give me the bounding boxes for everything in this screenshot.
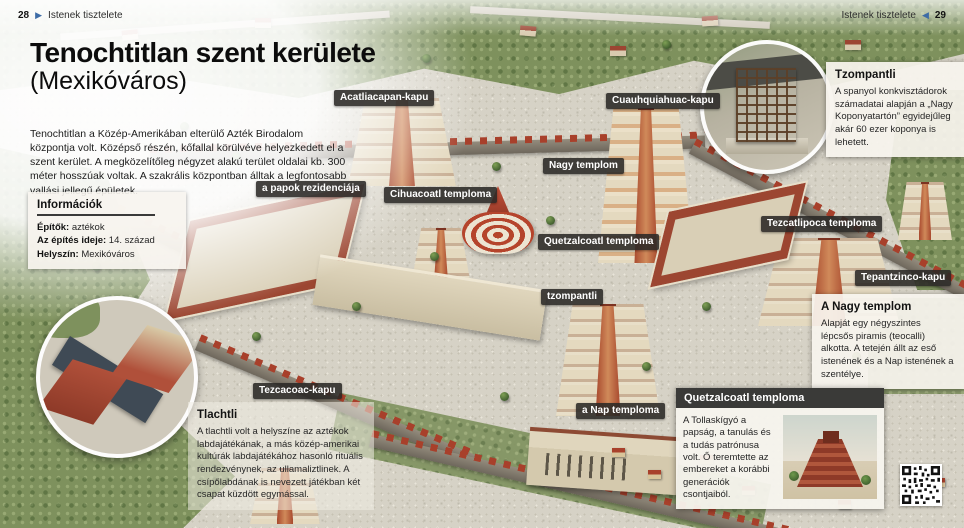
info-row-location: Helyszín: Mexikóváros [37, 248, 177, 261]
ballcourt-inset-photo [36, 296, 198, 458]
inset-grass [36, 296, 100, 338]
sun-temple-pyramid [556, 304, 660, 416]
tree [252, 332, 261, 341]
tree [546, 216, 555, 225]
info-row-date: Az építés ideje: 14. század [37, 234, 177, 247]
info-box: Információk Építők: aztékok Az építés id… [28, 192, 186, 269]
palm-tree [789, 471, 799, 481]
map-label-nap-temploma: a Nap temploma [576, 403, 665, 419]
callout-tzompantli-body: A spanyol konkvisztádorok számadatai ala… [835, 86, 957, 149]
mini-shrine [823, 431, 839, 443]
tree [642, 362, 651, 371]
section-title-right: Istenek tisztelete [841, 10, 915, 21]
map-label-tezcatlipoca-temploma: Tezcatlipoca temploma [761, 216, 882, 232]
palm-tree [861, 475, 871, 485]
callout-nagy-templom-body: Alapját egy négyszintes lépcsős piramis … [821, 318, 955, 381]
colonnade-building [526, 427, 680, 495]
cone-base [462, 212, 534, 254]
callout-nagy-templom-title: A Nagy templom [821, 301, 955, 313]
title-block: Tenochtitlan szent kerülete (Mexikóváros… [30, 38, 375, 96]
map-label-tepantzinco-kapu: Tepantzinco-kapu [855, 270, 951, 286]
header-fade [0, 0, 964, 36]
page-number-left: 28 [18, 10, 29, 21]
running-head-right: Istenek tisztelete ◀ 29 [841, 10, 946, 21]
section-title-left: Istenek tisztelete [48, 10, 122, 21]
page-subtitle: (Mexikóváros) [30, 67, 375, 96]
callout-tlachtli-title: Tlachtli [197, 409, 365, 421]
info-label: Helyszín: [37, 249, 79, 260]
info-label: Az építés ideje: [37, 235, 106, 246]
running-head-left: 28 ▶ Istenek tisztelete [18, 10, 123, 21]
quetzalcoatl-temple-photo [783, 415, 877, 499]
info-value: Mexikóváros [79, 249, 135, 260]
tree [492, 162, 501, 171]
map-label-tezcacoac-kapu: Tezcacoac-kapu [253, 383, 342, 399]
map-label-papok-rezidenciaja: a papok rezidenciája [256, 181, 366, 197]
map-label-cihuacoatl-temploma: Cihuacoatl temploma [384, 187, 497, 203]
qr-code [900, 464, 942, 506]
map-label-nagy-templom: Nagy templom [543, 158, 624, 174]
arrow-left-icon: ◀ [922, 10, 929, 21]
info-box-rule [37, 214, 155, 216]
arrow-right-icon: ▶ [35, 10, 42, 21]
info-value: 14. század [106, 235, 155, 246]
east-small-pyramid [898, 182, 952, 240]
tree [702, 302, 711, 311]
info-label: Építők: [37, 222, 69, 233]
info-row-builders: Építők: aztékok [37, 221, 177, 234]
book-spread: 28 ▶ Istenek tisztelete Istenek tisztele… [0, 0, 964, 528]
page-title: Tenochtitlan szent kerülete [30, 38, 375, 67]
callout-tzompantli-title: Tzompantli [835, 69, 957, 81]
page-number-right: 29 [935, 10, 946, 21]
callout-quetzalcoatl-title: Quetzalcoatl temploma [676, 388, 884, 408]
map-label-quetzalcoatl-temploma: Quetzalcoatl temploma [538, 234, 659, 250]
mini-pyramid [797, 439, 863, 487]
tree [662, 40, 671, 49]
tzompantli-inset-photo [700, 40, 834, 174]
map-label-tzompantli: tzompantli [541, 289, 603, 305]
callout-tlachtli: Tlachtli A tlachtli volt a helyszíne az … [188, 402, 374, 510]
info-value: aztékok [69, 222, 104, 233]
tree [500, 392, 509, 401]
callout-quetzalcoatl-body-wrap: A Tollaskígyó a papság, a tanulás és a t… [676, 408, 884, 509]
callout-tlachtli-body: A tlachtli volt a helyszíne az aztékok l… [197, 426, 365, 502]
skull-rack-scaffold [736, 68, 796, 142]
info-box-title: Információk [37, 199, 177, 211]
house [610, 46, 626, 56]
callout-tzompantli: Tzompantli A spanyol konkvisztádorok szá… [826, 62, 964, 157]
market-stall [648, 470, 661, 479]
callout-quetzalcoatl-body: A Tollaskígyó a papság, a tanulás és a t… [683, 415, 777, 501]
house [845, 40, 861, 50]
callout-nagy-templom: A Nagy templom Alapját egy négyszintes l… [812, 294, 964, 389]
map-label-cuauhquiahuac-kapu: Cuauhquiahuac-kapu [606, 93, 720, 109]
market-stall [612, 448, 625, 457]
map-label-acatliacapan-kapu: Acatliacapan-kapu [334, 90, 434, 106]
callout-quetzalcoatl: Quetzalcoatl temploma A Tollaskígyó a pa… [676, 388, 884, 509]
